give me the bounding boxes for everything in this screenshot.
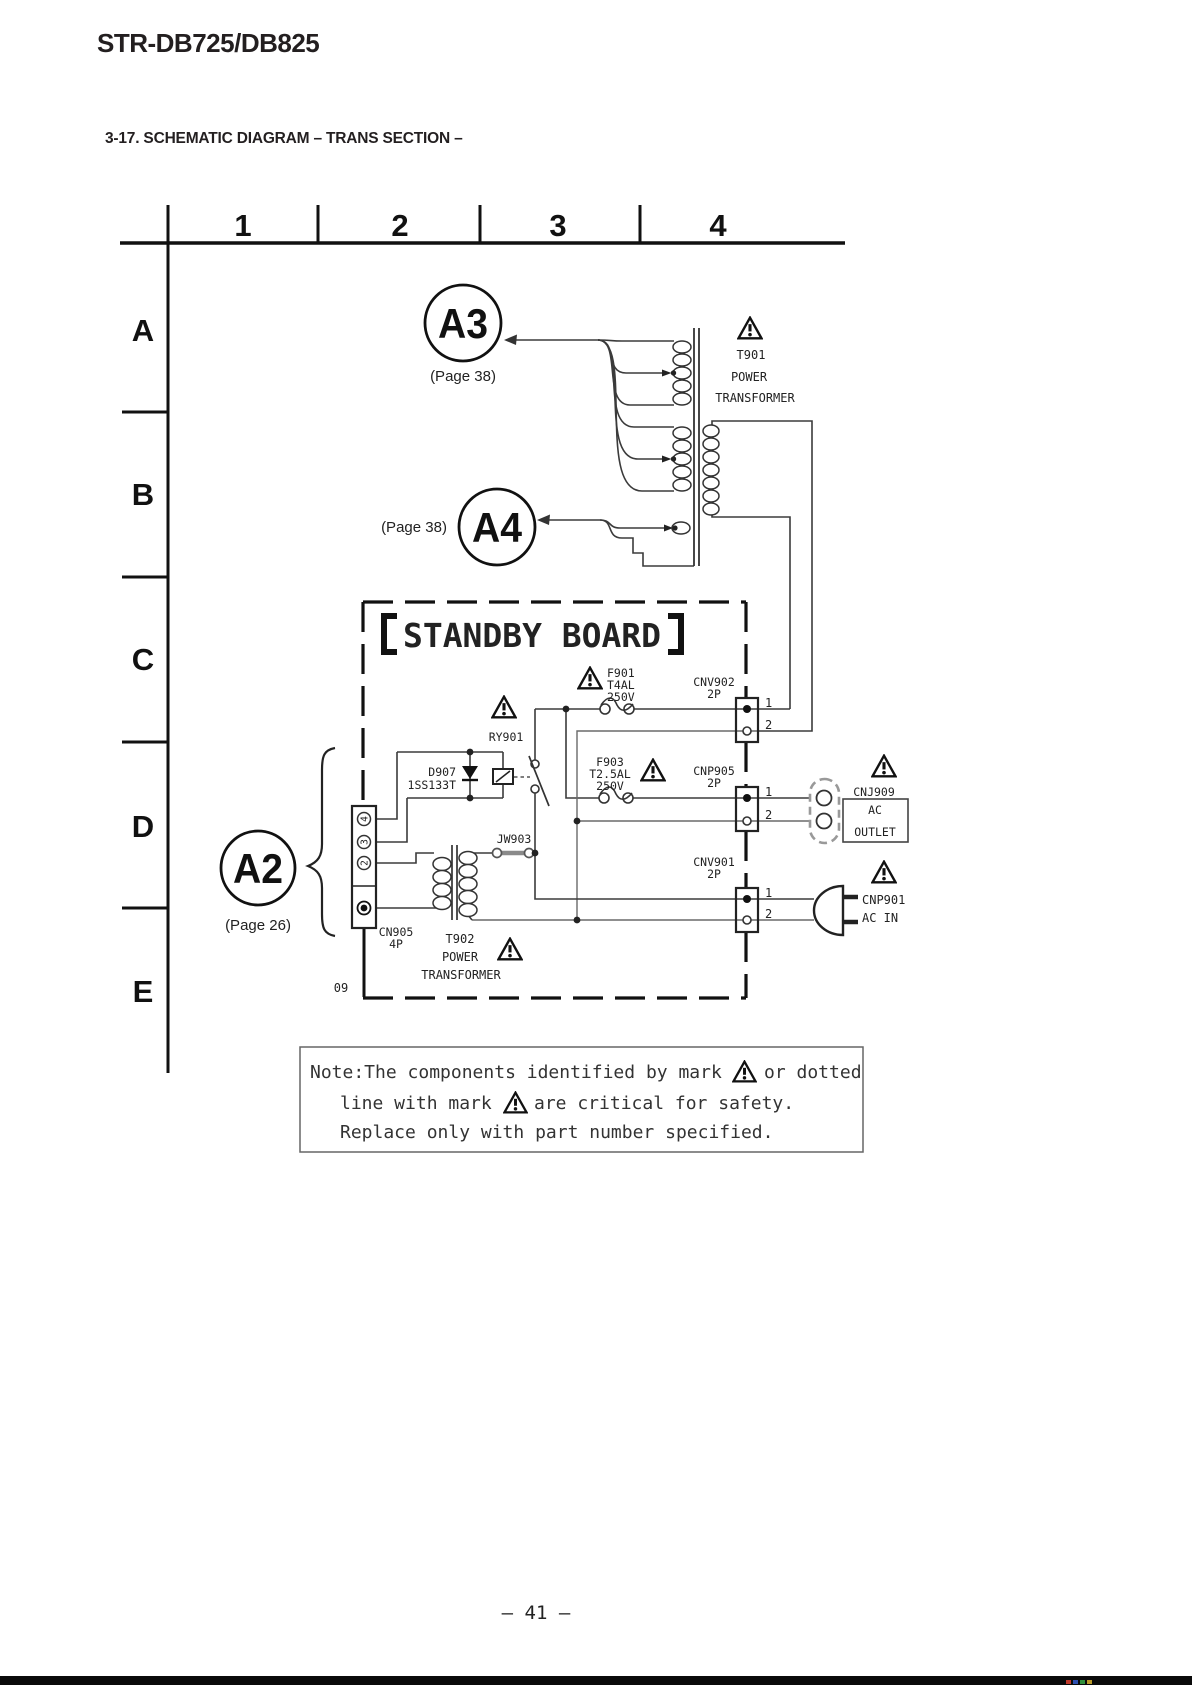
a3-arrowhead — [504, 335, 517, 346]
warning-icon — [499, 939, 522, 960]
cn905-pin4: 4 — [360, 816, 371, 822]
grid-col-1: 1 — [234, 208, 251, 243]
schematic-canvas: 1 2 3 4 A B C D E 09 STANDBY BOARD — [0, 0, 1192, 1685]
warning-icon — [493, 697, 516, 718]
note-line2b: are critical for safety. — [534, 1093, 794, 1114]
safety-note: Note:The components identified by mark o… — [300, 1047, 872, 1152]
cnv902-size: 2P — [707, 687, 721, 701]
a2-brace — [308, 748, 335, 936]
cnv901-pin1: 1 — [765, 886, 772, 900]
note-line3: Replace only with part number specified. — [340, 1122, 773, 1143]
note-line1b: or dotted — [764, 1062, 862, 1083]
cnv902-pin1: 1 — [765, 696, 772, 710]
grid-col-4: 4 — [709, 208, 727, 243]
grid-row-e: E — [133, 974, 154, 1009]
standby-board-title: STANDBY BOARD — [384, 616, 681, 655]
bottom-bar — [0, 1676, 1192, 1685]
ref-a2-page: (Page 26) — [225, 917, 291, 934]
wiring — [370, 421, 817, 920]
grid-row-d: D — [132, 809, 154, 844]
ref-a3: A3 (Page 38) — [425, 285, 501, 385]
cn905-pin2: 2 — [360, 860, 371, 866]
f903-fuse: F903 T2.5AL 250V — [589, 755, 664, 803]
d907-ref: D907 — [428, 765, 456, 779]
t902-secondary — [433, 858, 451, 910]
grid-row-b: B — [132, 477, 154, 512]
cnp901-name: AC IN — [862, 911, 898, 925]
cnv901-size: 2P — [707, 867, 721, 881]
f901-fuse: F901 T4AL 250V — [579, 666, 635, 714]
t901-secondary-1 — [662, 341, 691, 405]
t902-primary — [459, 852, 477, 917]
warning-icon — [579, 668, 602, 689]
note-line1a: Note:The components identified by mark — [310, 1062, 722, 1083]
warning-icon — [873, 756, 896, 777]
cn905-size: 4P — [389, 937, 403, 951]
t901-primary — [703, 425, 719, 515]
ref-a4: A4 (Page 38) — [381, 489, 535, 565]
t901-secondary-2 — [662, 427, 691, 491]
ref-a2-label: A2 — [233, 845, 283, 892]
warning-icon — [873, 862, 896, 883]
note-line2a: line with mark — [340, 1093, 492, 1114]
board-title-text: STANDBY BOARD — [403, 616, 661, 655]
a4-arrowhead — [537, 515, 550, 526]
jw903-ref: JW903 — [497, 832, 532, 846]
page-number: – 41 – — [502, 1602, 571, 1624]
cnp905-pin2: 2 — [765, 808, 772, 822]
manual-page: STR-DB725/DB825 3-17. SCHEMATIC DIAGRAM … — [0, 0, 1192, 1685]
ry901-ref: RY901 — [489, 730, 524, 744]
d907-diode: D907 1SS133T — [408, 765, 478, 792]
warning-icon — [642, 760, 665, 781]
cnv901-pin2: 2 — [765, 907, 772, 921]
ref-a4-label: A4 — [472, 504, 523, 551]
cnj909-name1: AC — [868, 803, 882, 817]
grid-row-c: C — [132, 642, 154, 677]
ref-a2: A2 (Page 26) — [221, 748, 335, 936]
cnj909-ref: CNJ909 — [853, 785, 895, 799]
cnv902-pin2: 2 — [765, 718, 772, 732]
t902-ref: T902 — [446, 932, 475, 946]
f903-rating2: 250V — [596, 779, 624, 793]
cn905-pin3: 3 — [360, 839, 371, 845]
t902-name1: POWER — [442, 950, 479, 964]
grid-col-3: 3 — [549, 208, 566, 243]
ref-a3-label: A3 — [438, 300, 488, 347]
grid-col-2: 2 — [391, 208, 408, 243]
f901-rating2: 250V — [607, 690, 635, 704]
t901-ref: T901 — [737, 348, 766, 362]
t901-name1: POWER — [731, 370, 768, 384]
jw903-jumper: JW903 — [493, 832, 534, 858]
t901-transformer: T901 POWER TRANSFORMER — [504, 318, 796, 566]
t901-secondary-3 — [664, 522, 690, 534]
ref-a3-page: (Page 38) — [430, 368, 496, 385]
t902-name2: TRANSFORMER — [421, 968, 501, 982]
cn905-connector: 4 3 2 CN905 4P — [352, 806, 413, 951]
cnp901-ac-in: CNP901 AC IN — [814, 862, 905, 935]
t901-name2: TRANSFORMER — [715, 391, 795, 405]
junction-dots — [467, 706, 581, 924]
t902-transformer: T902 POWER TRANSFORMER — [421, 845, 521, 982]
cnp905-pin1: 1 — [765, 785, 772, 799]
cnp905-size: 2P — [707, 776, 721, 790]
warning-icon — [739, 318, 762, 339]
grid-row-a: A — [132, 313, 154, 348]
d907-part: 1SS133T — [408, 778, 457, 792]
cnj909-ac-outlet: CNJ909 AC OUTLET — [810, 756, 908, 843]
ref-a4-page: (Page 38) — [381, 519, 447, 536]
board-code: 09 — [334, 981, 348, 995]
cnp901-ref: CNP901 — [862, 893, 905, 907]
cnj909-name2: OUTLET — [854, 825, 896, 839]
